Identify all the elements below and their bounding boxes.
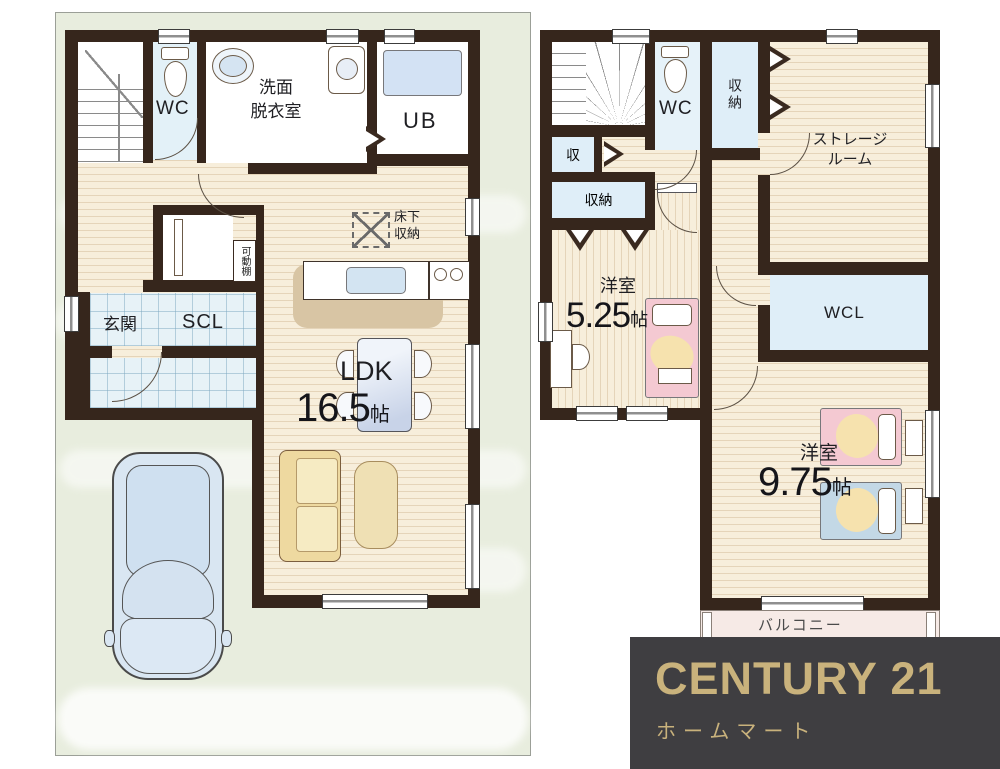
label-wc-1f: WC [156, 98, 190, 120]
underfloor-storage-marker [352, 212, 390, 248]
wall [712, 148, 760, 160]
label-room-9_75-size: 9.75 帖 [758, 460, 852, 505]
wall [552, 125, 645, 137]
wall [197, 42, 206, 163]
side-table [905, 488, 923, 524]
shelf-icon [174, 219, 183, 276]
label-balcony: バルコニー [758, 614, 843, 635]
wall [758, 42, 770, 133]
sofa-cushion [296, 458, 338, 504]
century21-logo-panel: CENTURY 21 ホームマート [630, 637, 1000, 769]
window [626, 406, 668, 421]
car-hood [120, 618, 216, 674]
pillow [878, 414, 896, 460]
wall [377, 154, 468, 166]
movable-shelf-box: 可動棚 [233, 240, 256, 282]
wall [153, 215, 163, 282]
label-closet-small-2f: 収 [566, 145, 580, 165]
label-room-5_25-size: 5.25 帖 [566, 296, 648, 336]
folding-door-icon [604, 146, 617, 162]
car-mirror-right [221, 630, 232, 647]
window [326, 29, 359, 44]
wall [645, 42, 655, 150]
folding-door-icon [770, 51, 783, 67]
wall [367, 42, 377, 174]
label-ldk: LDK [340, 356, 393, 387]
window [465, 198, 480, 236]
closet-hall-2f: 収納 [552, 182, 645, 218]
label-closet-north-2f: 収納 [725, 78, 745, 112]
sofa-cushion [296, 506, 338, 552]
window [925, 84, 940, 148]
ldk-size-number: 16.5 [296, 386, 370, 431]
closet-small-2f: 収 [552, 137, 594, 172]
room-9_75-unit: 帖 [832, 471, 852, 505]
label-storage-room-line1: ストレージ [813, 131, 888, 148]
x-line [354, 214, 388, 246]
label-closet-hall-2f: 収納 [585, 190, 613, 210]
room-5_25-unit: 帖 [630, 306, 648, 336]
folding-door-icon [571, 230, 589, 243]
window [465, 344, 480, 429]
wall [248, 163, 367, 174]
folding-door-icon [366, 131, 379, 147]
label-ldk-size: 16.5 帖 [296, 386, 390, 431]
movable-shelf-label: 可動棚 [237, 246, 252, 276]
century21-brand-text: CENTURY 21 [655, 653, 943, 705]
label-ub-1f: UB [403, 108, 438, 134]
label-wc-2f: WC [659, 98, 693, 120]
label-washroom-line1: 洗面 [259, 78, 293, 97]
folding-door-icon [626, 230, 644, 243]
car-icon [108, 450, 228, 685]
washing-machine-icon [336, 58, 358, 80]
site-streak [58, 688, 528, 750]
room-5_25-number: 5.25 [566, 296, 630, 336]
wall [90, 346, 112, 358]
stove-burner [450, 268, 463, 281]
stairs-diagonal [85, 50, 143, 118]
label-room-5_25: 洋室 [600, 272, 636, 298]
kitchen-sink [346, 267, 406, 294]
pillow [878, 488, 896, 534]
label-scl-1f: SCL [182, 311, 224, 334]
stairs-rail [118, 74, 120, 162]
label-washroom-1f: 洗面 脱衣室 [221, 76, 331, 124]
window [538, 302, 553, 342]
window [761, 596, 864, 611]
window [322, 594, 428, 609]
label-washroom-line2: 脱衣室 [251, 102, 302, 121]
wall [256, 205, 264, 408]
wall [552, 172, 655, 182]
wall [143, 42, 153, 163]
pillow [652, 304, 692, 326]
window [925, 410, 940, 498]
stove-burner [434, 268, 447, 281]
window [158, 29, 190, 44]
room-9_75-number: 9.75 [758, 460, 832, 505]
bed-footer [658, 368, 692, 384]
century21-company-text: ホームマート [656, 715, 817, 744]
closet-north-2f: 収納 [712, 42, 758, 148]
wall [552, 218, 655, 230]
window [826, 29, 858, 44]
window [384, 29, 415, 44]
wall [758, 262, 928, 275]
stairs-2f-treads [552, 42, 586, 125]
car-mirror-left [104, 630, 115, 647]
label-wcl: WCL [824, 303, 865, 323]
floorplan-page: 可動棚 可動棚 WC 洗面 脱衣室 UB 床下 [0, 0, 1000, 769]
toilet-icon [161, 47, 189, 60]
label-storage-room: ストレージ ルーム [790, 130, 910, 171]
wall [594, 137, 602, 172]
stove-icon [428, 262, 430, 299]
label-underfloor-line1: 床下 [394, 209, 420, 224]
wall [162, 346, 256, 358]
wall [78, 292, 90, 408]
label-storage-room-line2: ルーム [828, 151, 873, 168]
wall [758, 175, 770, 270]
sink-icon [219, 55, 247, 77]
window [612, 29, 650, 44]
window [465, 504, 480, 589]
wall [758, 305, 770, 350]
wall [645, 172, 655, 230]
label-underfloor-storage: 床下 収納 [394, 209, 420, 243]
bathtub-icon [383, 50, 462, 96]
ldk-size-unit: 帖 [370, 398, 390, 431]
window [576, 406, 618, 421]
toilet-icon [661, 46, 689, 58]
wall [758, 350, 928, 362]
folding-door-icon [770, 99, 783, 115]
sofa-table [354, 461, 398, 549]
desk [550, 330, 572, 388]
room-wc-2f [655, 42, 700, 150]
label-underfloor-line2: 収納 [394, 226, 420, 241]
label-entrance-1f: 玄関 [103, 310, 137, 335]
window [64, 296, 79, 332]
side-table [905, 420, 923, 456]
wall [153, 205, 264, 215]
